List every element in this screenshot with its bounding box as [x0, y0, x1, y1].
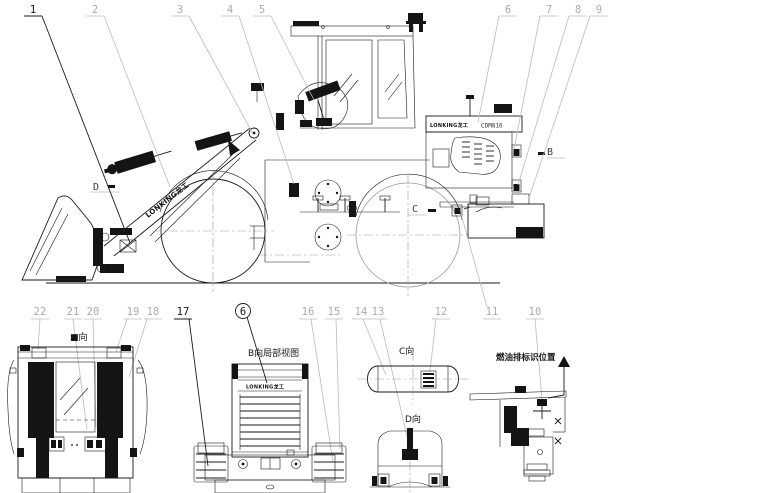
door-window [326, 40, 372, 124]
right-fender [312, 443, 346, 482]
direction-marker-b: B [538, 147, 565, 158]
frame-warning-decal [402, 449, 418, 460]
marker-b-letter: B [547, 147, 553, 158]
view-d-title: D向 [405, 413, 421, 425]
callout-4: 4 [227, 4, 233, 16]
frame-decal [289, 183, 299, 197]
marker-c-letter: C [412, 204, 418, 215]
callout-1: 1 [30, 4, 36, 16]
callout-22: 22 [34, 306, 47, 318]
loader-decal-diagram: LONKING龙工 D [0, 0, 768, 493]
grille-logo-decal: LONKING龙工 [246, 384, 284, 391]
tank-decal [421, 371, 436, 388]
callout-7: 7 [546, 4, 552, 16]
right-panel [97, 362, 123, 438]
callout-16: 16 [302, 306, 315, 318]
engineering-drawing-page: LONKING龙工 D [0, 0, 768, 493]
left-lamp [32, 348, 46, 358]
fuel-view-title: 燃油排标识位置 [496, 352, 556, 363]
hood-logo-decal: LONKING龙工 [430, 122, 468, 129]
boom-assembly: LONKING龙工 [103, 128, 259, 256]
d-warning-label-left [378, 474, 389, 486]
rear-quarter-window [378, 40, 407, 118]
engine-hood: LONKING龙工 CDM816 [426, 95, 522, 192]
marker-d-letter: D [93, 182, 99, 193]
svg-text:6: 6 [240, 306, 246, 318]
view-d: D向 [370, 413, 450, 492]
main-side-view: LONKING龙工 D [22, 13, 565, 296]
muffler [494, 104, 512, 113]
roof-vent [293, 21, 319, 26]
left-fender [194, 443, 228, 482]
beacon-icon [406, 13, 426, 32]
rear-decal-right [85, 437, 106, 451]
view-c: C向 [358, 345, 468, 404]
left-tire [36, 438, 49, 478]
bucket-edge-shadow [56, 276, 86, 282]
hood-warning-label-upper [512, 145, 521, 157]
hood-grille-slats [462, 142, 494, 164]
radiator-grille-slats [240, 397, 300, 446]
left-panel [28, 362, 54, 438]
front-wheel [152, 170, 274, 292]
callout-20: 20 [87, 306, 100, 318]
callout-18: 18 [147, 306, 160, 318]
drain-bracket [500, 397, 565, 481]
direction-marker-c: C [408, 204, 436, 215]
view-b-title: B向局部视图 [248, 347, 299, 359]
cab [251, 13, 426, 130]
operator-console [295, 80, 348, 128]
callout-5: 5 [259, 4, 265, 16]
articulation-flanges [315, 180, 356, 250]
lift-cylinder [103, 145, 173, 177]
d-warning-label-right [429, 474, 440, 486]
callout-2: 2 [92, 4, 98, 16]
callout-9: 9 [596, 4, 602, 16]
rear-decal-left [49, 437, 64, 451]
rear-frame [440, 194, 544, 238]
rear-bumper [205, 450, 335, 480]
callout-3: 3 [177, 4, 183, 16]
view-b-partial: B向局部视图 LONKING龙工 [194, 347, 346, 493]
rear-window [56, 362, 95, 432]
callout-12: 12 [435, 306, 448, 318]
bucket [22, 196, 136, 280]
callout-15: 15 [328, 306, 341, 318]
direction-marker-d: D [90, 182, 120, 193]
left-handrail [8, 360, 14, 454]
callout-6-circled: 6 [236, 304, 268, 384]
view-c-title: C向 [399, 345, 414, 357]
plate-decal [515, 386, 526, 393]
callout-19: 19 [127, 306, 140, 318]
rear-view-title: ■向 [70, 331, 88, 343]
fuel-marker-cross [533, 399, 551, 419]
right-tire [105, 438, 118, 478]
right-handrail [138, 360, 147, 454]
callout-6: 6 [505, 4, 511, 16]
callout-14: 14 [355, 306, 368, 318]
callout-11: 11 [486, 306, 499, 318]
exhaust-stub [512, 194, 529, 204]
callout-17: 17 [177, 306, 190, 318]
right-lamp [107, 348, 121, 358]
callout-13: 13 [372, 306, 385, 318]
hood-access-panel [433, 149, 449, 167]
callout-8: 8 [575, 4, 581, 16]
bellcrank [228, 140, 240, 156]
handrail-grip [276, 113, 284, 130]
callout-10: 10 [529, 306, 542, 318]
hood-model-decal: CDM816 [481, 123, 503, 130]
view-fuel-drain: 燃油排标识位置 [470, 352, 570, 481]
hood-warning-label-lower [512, 180, 521, 192]
callout-21: 21 [67, 306, 80, 318]
